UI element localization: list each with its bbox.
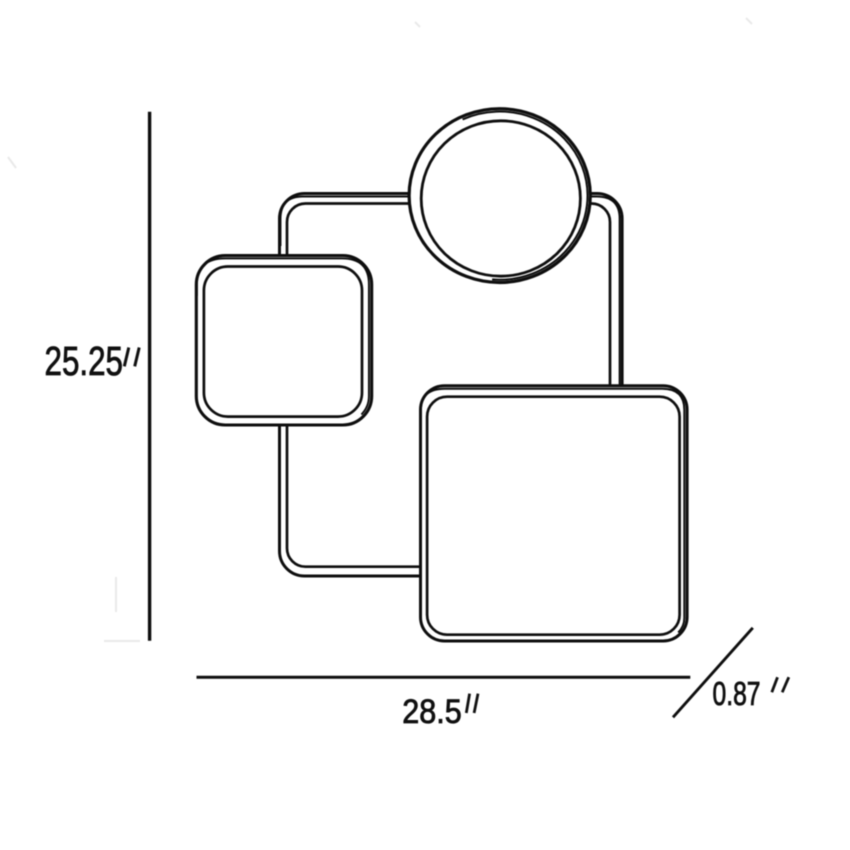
svg-text:0.87: 0.87 [713, 675, 761, 712]
svg-text:28.5: 28.5 [402, 693, 462, 731]
svg-text:25.25: 25.25 [45, 338, 124, 384]
